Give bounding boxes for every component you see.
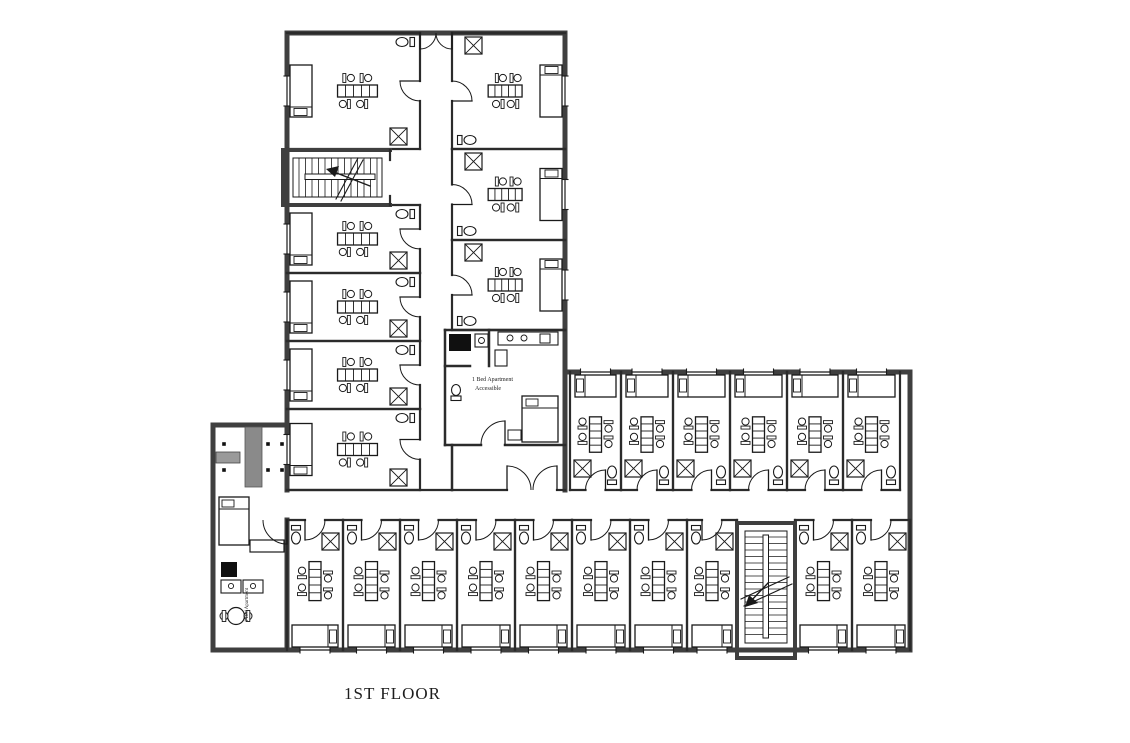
dorm-room <box>630 520 687 653</box>
dorm-room <box>284 273 420 341</box>
staircase-west <box>283 150 390 205</box>
dorm-room <box>452 240 568 330</box>
dorm-room <box>843 369 900 490</box>
dorm-room <box>400 520 457 653</box>
dorm-room <box>687 520 737 653</box>
dorm-room <box>287 520 343 653</box>
floor-title: 1ST FLOOR <box>344 684 441 703</box>
dorm-room <box>730 369 787 490</box>
dorm-room <box>284 341 420 409</box>
entrance-lobby <box>216 427 284 487</box>
dorm-rooms <box>284 33 910 653</box>
dorm-room <box>343 520 400 653</box>
dorm-room <box>284 409 420 490</box>
dorm-room <box>570 369 621 490</box>
dorm-room <box>457 520 515 653</box>
staircase-south <box>737 523 795 658</box>
one-bed-apartment <box>219 497 284 625</box>
floor-plan-drawing: 1 Bed Apartment Accessible 1 Bed Apartme… <box>0 0 1130 743</box>
floor-plan-page: 1 Bed Apartment Accessible 1 Bed Apartme… <box>0 0 1130 743</box>
dorm-room <box>673 369 730 490</box>
dorm-room <box>284 205 420 273</box>
dorm-room <box>787 369 843 490</box>
dorm-room <box>452 33 568 149</box>
dorm-room <box>852 520 910 653</box>
dorm-room <box>572 520 630 653</box>
dorm-room <box>621 369 673 490</box>
dorm-room <box>452 149 568 240</box>
accessible-apartment-label-line2: Accessible <box>475 386 501 392</box>
accessible-apartment-label-line1: 1 Bed Apartment <box>472 377 513 383</box>
accessible-apartment <box>445 330 565 490</box>
dorm-room <box>515 520 572 653</box>
dorm-room <box>795 520 852 653</box>
one-bed-apartment-vertical-label: 1 Bed Apartment <box>245 587 250 622</box>
dorm-room <box>284 33 420 149</box>
